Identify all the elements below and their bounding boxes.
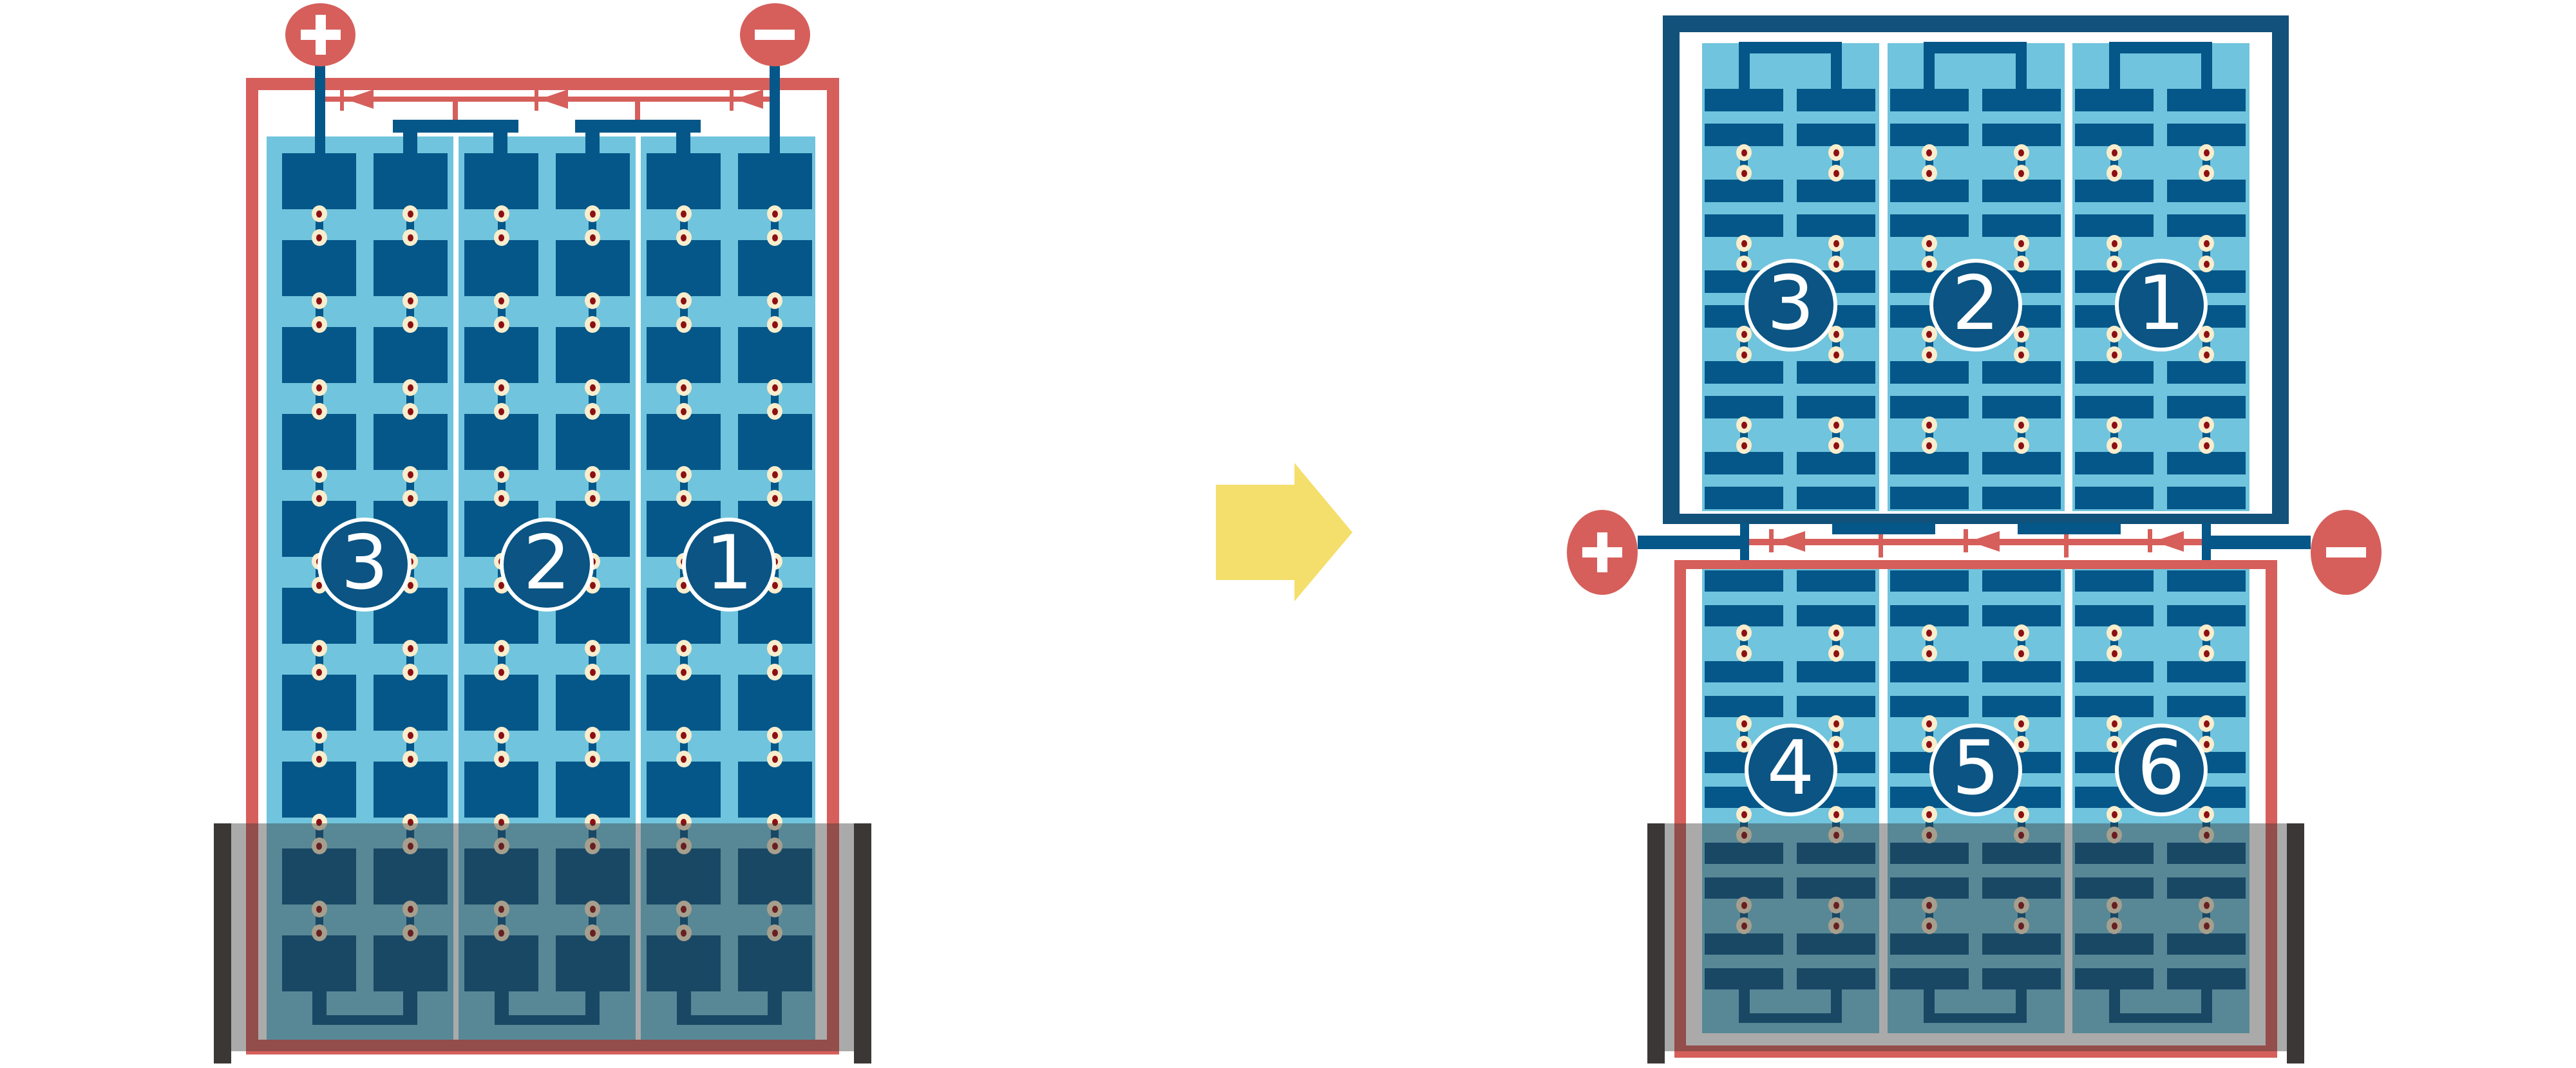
connector-dot-center	[498, 471, 504, 478]
connector-dot-center	[772, 211, 778, 218]
right-arrow-icon	[1216, 485, 1294, 580]
battery-plate	[464, 414, 538, 470]
connector-dot-center	[681, 471, 687, 478]
cell-bridge-leg	[493, 133, 507, 158]
positive-terminal-lead	[1638, 536, 1740, 549]
cell-bridge-leg	[676, 133, 690, 158]
connector-dot-center	[316, 495, 322, 502]
connector-dot	[767, 490, 782, 507]
connector-dot-center	[316, 669, 322, 676]
battery-plate	[738, 762, 812, 818]
left-diode-icon	[1969, 531, 2000, 552]
negative-terminal	[2311, 510, 2382, 595]
connector-dot-center	[772, 384, 778, 391]
connector-dot	[402, 379, 418, 396]
battery-plate	[374, 414, 448, 470]
battery-plate	[282, 153, 356, 209]
connector-dot	[402, 316, 418, 333]
plus-icon	[316, 15, 326, 55]
connector-dot	[676, 640, 692, 657]
connector-dot	[585, 316, 600, 333]
connector-dot-center	[408, 756, 413, 763]
connector-dot	[312, 229, 327, 246]
connector-dot-center	[590, 408, 596, 415]
battery-plate	[374, 762, 448, 818]
diode-bar	[1769, 529, 1774, 552]
connector-dot-center	[590, 756, 596, 763]
connector-dot	[676, 664, 692, 680]
diode-bar	[730, 88, 734, 111]
battery-plate	[282, 675, 356, 731]
cell-bridge-bar	[393, 120, 518, 133]
connector-dot	[494, 751, 509, 767]
cell-number-badge: 2	[1929, 259, 2022, 351]
connector-dot-center	[316, 211, 322, 218]
connector-dot	[402, 205, 418, 222]
connector-dot	[676, 490, 692, 507]
connector-dot-center	[681, 297, 687, 304]
cell-number: 6	[2137, 731, 2185, 806]
cell-number: 1	[705, 526, 753, 601]
connector-dot-center	[681, 669, 687, 676]
positive-terminal	[1567, 510, 1638, 595]
connector-dot-center	[316, 756, 322, 763]
cell-number: 4	[1767, 731, 1815, 806]
tray-overlay	[1647, 823, 2304, 1051]
cell-bridge-bar	[575, 120, 701, 133]
connector-dot	[312, 379, 327, 396]
connector-dot	[585, 292, 600, 309]
connector-dot	[767, 727, 782, 744]
connector-dot	[494, 490, 509, 507]
connector-dot-center	[408, 408, 413, 415]
connector-dot	[312, 403, 327, 420]
connector-dot-center	[498, 669, 504, 676]
connector-dot-center	[590, 211, 596, 218]
battery-plate	[464, 762, 538, 818]
cell-number-badge: 1	[682, 518, 776, 612]
module-bridge-tab	[2018, 523, 2121, 534]
battery-plate	[464, 675, 538, 731]
cell-number: 2	[1952, 267, 2000, 341]
connector-dot	[676, 229, 692, 246]
connector-dot-center	[681, 756, 687, 763]
connector-dot-center	[316, 234, 322, 241]
connector-dot	[676, 316, 692, 333]
battery-plate	[374, 153, 448, 209]
connector-dot	[494, 229, 509, 246]
connector-dot-center	[408, 645, 413, 652]
battery-plate	[464, 327, 538, 383]
battery-plate	[738, 153, 812, 209]
connector-dot	[676, 466, 692, 483]
connector-dot-center	[772, 732, 778, 739]
connector-dot	[402, 403, 418, 420]
connector-dot	[767, 403, 782, 420]
connector-dot-center	[772, 297, 778, 304]
connector-dot-center	[408, 234, 413, 241]
tray-overlay	[214, 823, 871, 1051]
connector-dot-center	[590, 495, 596, 502]
negative-terminal-lead	[2211, 536, 2311, 549]
cell-number-badge: 1	[2115, 259, 2208, 351]
battery-plate	[282, 240, 356, 296]
cell-number-badge: 2	[500, 518, 594, 612]
battery-plate	[647, 762, 721, 818]
right-arrow-icon	[1294, 463, 1352, 601]
cell-number-badge: 3	[317, 518, 412, 612]
diode-bar	[2148, 529, 2152, 552]
left-diode-icon	[345, 89, 374, 109]
minus-icon	[755, 30, 795, 40]
cell-bridge-leg	[403, 133, 417, 158]
tray-side-wall	[2287, 823, 2304, 1063]
connector-dot	[767, 751, 782, 767]
connector-dot	[676, 751, 692, 767]
connector-dot-center	[498, 495, 504, 502]
battery-plate	[282, 414, 356, 470]
connector-dot-center	[498, 297, 504, 304]
connector-dot	[767, 205, 782, 222]
battery-plate	[556, 153, 630, 209]
connector-dot-center	[316, 732, 322, 739]
connector-dot	[585, 466, 600, 483]
connector-dot	[402, 229, 418, 246]
connector-dot	[402, 490, 418, 507]
connector-dot	[585, 664, 600, 680]
battery-plate	[556, 327, 630, 383]
connector-dot-center	[590, 384, 596, 391]
battery-plate	[738, 414, 812, 470]
battery-plate	[647, 153, 721, 209]
cell-number-badge: 5	[1929, 724, 2022, 816]
negative-terminal-post	[2202, 523, 2211, 560]
tray-side-wall	[1647, 823, 1665, 1063]
plus-icon	[1597, 532, 1607, 572]
connector-dot	[494, 727, 509, 744]
cell-number: 5	[1952, 731, 2000, 806]
negative-terminal	[740, 3, 810, 66]
battery-plate	[556, 762, 630, 818]
tray-side-wall	[854, 823, 871, 1063]
connector-dot	[312, 316, 327, 333]
connector-dot-center	[316, 408, 322, 415]
connector-dot-center	[498, 732, 504, 739]
connector-dot	[312, 664, 327, 680]
connector-dot	[312, 292, 327, 309]
connector-dot	[585, 751, 600, 767]
connector-dot	[585, 490, 600, 507]
battery-plate	[464, 240, 538, 296]
connector-dot	[676, 205, 692, 222]
left-diode-icon	[2154, 531, 2184, 552]
battery-plate	[556, 414, 630, 470]
connector-dot	[676, 379, 692, 396]
connector-dot	[312, 466, 327, 483]
connector-dot	[312, 490, 327, 507]
left-diode-icon	[735, 89, 763, 109]
diode-bar	[535, 88, 538, 111]
connector-dot	[585, 205, 600, 222]
connector-dot-center	[498, 756, 504, 763]
cell-number: 2	[523, 526, 571, 601]
connector-dot	[402, 292, 418, 309]
current-tap	[635, 100, 640, 121]
connector-dot-center	[772, 582, 778, 589]
module-bridge-tab	[1832, 523, 1935, 534]
connector-dot-center	[408, 582, 413, 589]
connector-dot	[676, 292, 692, 309]
connector-dot-center	[772, 234, 778, 241]
battery-plate	[374, 240, 448, 296]
battery-plate	[738, 327, 812, 383]
connector-dot-center	[772, 645, 778, 652]
diode-bar	[340, 88, 344, 111]
connector-dot-center	[681, 732, 687, 739]
connector-dot-center	[772, 471, 778, 478]
connector-dot-center	[681, 408, 687, 415]
connector-dot	[767, 664, 782, 680]
battery-plate	[282, 762, 356, 818]
minus-icon	[2326, 547, 2366, 557]
battery-plate	[647, 327, 721, 383]
connector-dot	[494, 292, 509, 309]
connector-dot-center	[316, 645, 322, 652]
connector-dot	[767, 466, 782, 483]
connector-dot	[494, 379, 509, 396]
connector-dot	[676, 727, 692, 744]
connector-dot-center	[590, 234, 596, 241]
connector-dot-center	[316, 321, 322, 328]
connector-dot	[312, 640, 327, 657]
connector-dot	[585, 727, 600, 744]
battery-plate	[374, 327, 448, 383]
connector-dot	[402, 466, 418, 483]
diode-bar	[1964, 529, 1968, 552]
connector-dot	[494, 205, 509, 222]
connector-dot-center	[772, 321, 778, 328]
connector-dot-center	[316, 297, 322, 304]
connector-dot-center	[408, 297, 413, 304]
connector-dot	[767, 640, 782, 657]
battery-plate	[464, 153, 538, 209]
cell-number-badge: 6	[2115, 724, 2208, 816]
connector-dot-center	[772, 756, 778, 763]
connector-dot-center	[498, 321, 504, 328]
battery-plate	[556, 240, 630, 296]
connector-dot-center	[408, 321, 413, 328]
connector-dot-center	[772, 669, 778, 676]
connector-dot-center	[408, 732, 413, 739]
connector-dot-center	[498, 384, 504, 391]
connector-dot-center	[498, 645, 504, 652]
left-diode-icon	[540, 89, 568, 109]
connector-dot	[494, 640, 509, 657]
connector-dot-center	[590, 645, 596, 652]
connector-dot	[312, 751, 327, 767]
battery-plate	[647, 675, 721, 731]
connector-dot-center	[590, 321, 596, 328]
connector-dot-center	[316, 471, 322, 478]
connector-dot	[494, 466, 509, 483]
connector-dot-center	[681, 234, 687, 241]
cell-bridge-leg	[585, 133, 600, 158]
battery-plate	[282, 327, 356, 383]
connector-dot	[585, 229, 600, 246]
connector-dot	[402, 664, 418, 680]
connector-dot-center	[681, 211, 687, 218]
connector-dot-center	[681, 384, 687, 391]
connector-dot	[585, 379, 600, 396]
connector-dot-center	[408, 211, 413, 218]
battery-plate	[647, 240, 721, 296]
connector-dot	[767, 292, 782, 309]
connector-dot-center	[681, 495, 687, 502]
connector-dot	[767, 229, 782, 246]
connector-dot-center	[408, 495, 413, 502]
cell-number: 3	[1767, 267, 1815, 341]
connector-dot-center	[590, 669, 596, 676]
left-diode-icon	[1775, 531, 1805, 552]
tray-side-wall	[214, 823, 231, 1063]
cell-number: 3	[341, 526, 388, 601]
connector-dot	[585, 640, 600, 657]
connector-dot-center	[498, 408, 504, 415]
battery-plate	[738, 240, 812, 296]
connector-dot-center	[681, 321, 687, 328]
connector-dot	[402, 727, 418, 744]
connector-dot	[585, 403, 600, 420]
connector-dot-center	[498, 211, 504, 218]
battery-plate	[738, 675, 812, 731]
connector-dot-center	[681, 645, 687, 652]
connector-dot	[402, 640, 418, 657]
cell-number: 1	[2137, 267, 2185, 341]
connector-dot	[676, 403, 692, 420]
connector-dot	[767, 316, 782, 333]
connector-dot	[494, 664, 509, 680]
cell-number-badge: 4	[1745, 724, 1837, 816]
positive-terminal-post	[1740, 523, 1749, 560]
connector-dot	[767, 379, 782, 396]
connector-dot-center	[408, 471, 413, 478]
connector-dot-center	[590, 582, 596, 589]
connector-dot	[312, 727, 327, 744]
connector-dot	[402, 751, 418, 767]
connector-dot-center	[590, 297, 596, 304]
cell-number-badge: 3	[1745, 259, 1837, 351]
battery-configuration-diagram: 3 2 1 3 2 1 4	[0, 0, 2576, 1068]
battery-plate	[374, 675, 448, 731]
connector-dot	[312, 205, 327, 222]
connector-dot-center	[590, 732, 596, 739]
current-tap	[453, 100, 458, 121]
connector-dot-center	[772, 495, 778, 502]
battery-plate	[556, 675, 630, 731]
battery-plate	[647, 414, 721, 470]
connector-dot	[494, 403, 509, 420]
connector-dot-center	[590, 471, 596, 478]
connector-dot-center	[772, 408, 778, 415]
connector-dot-center	[408, 384, 413, 391]
connector-dot	[494, 316, 509, 333]
connector-dot-center	[408, 669, 413, 676]
connector-dot-center	[498, 234, 504, 241]
connector-dot-center	[316, 384, 322, 391]
positive-terminal	[285, 3, 355, 66]
